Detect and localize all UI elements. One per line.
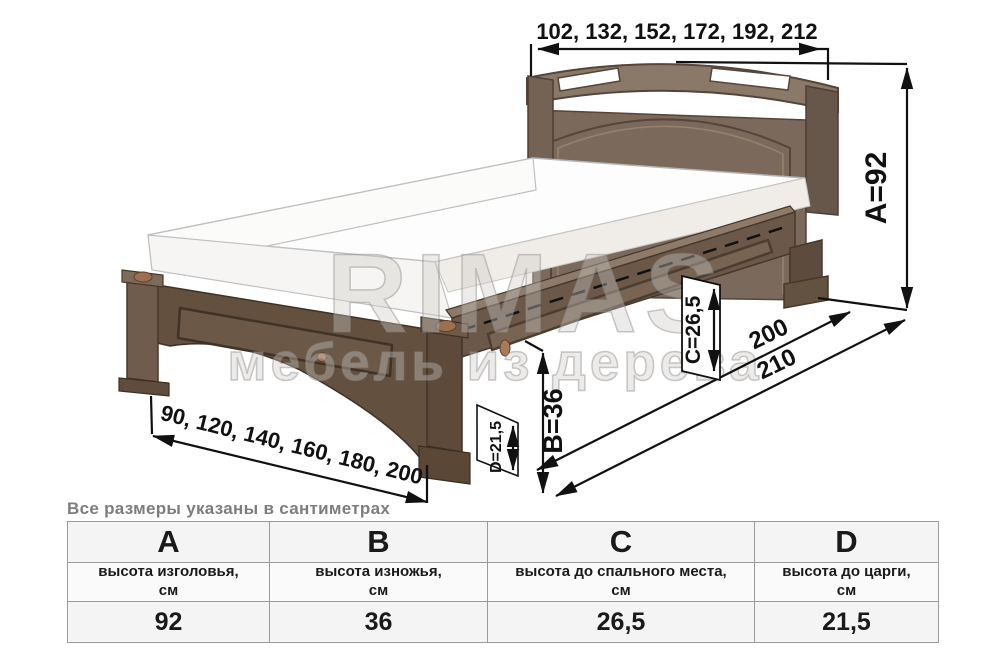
col-a-description: высота изголовья, см (68, 563, 270, 602)
units-note: Все размеры указаны в сантиметрах (67, 499, 390, 519)
dim-ext-floor-head (818, 298, 907, 310)
col-b-description: высота изножья, см (270, 563, 488, 602)
col-b-desc-text: высота изножья, (315, 563, 442, 580)
table-row-values: 92 36 26,5 21,5 (68, 602, 939, 643)
headboard-post-left (528, 76, 553, 168)
table-row-descriptions: высота изголовья, см высота изножья, см … (68, 563, 939, 602)
col-a-unit: см (159, 582, 178, 599)
dimensions-table: A B C D высота изголовья, см высота изно… (67, 521, 939, 643)
footboard-foot-left (119, 378, 169, 396)
bed-diagram: RIMAS мебель из дерева (0, 0, 1000, 520)
col-a-letter: A (68, 522, 270, 563)
label-height-a: А=92 (860, 152, 893, 225)
col-d-desc-text: высота до царги, (782, 563, 910, 580)
col-c-value: 26,5 (488, 602, 755, 643)
table-row-letters: A B C D (68, 522, 939, 563)
footboard-knob-left (134, 272, 152, 282)
footboard-post-left (127, 280, 158, 382)
dim-ext-headboard-right (820, 49, 828, 80)
label-height-c: С=26,5 (682, 296, 705, 365)
label-headboard-widths: 102, 132, 152, 172, 192, 212 (536, 19, 817, 44)
headboard-post-right (806, 86, 838, 215)
col-d-description: высота до царги, см (755, 563, 939, 602)
col-a-desc-text: высота изголовья, (98, 563, 238, 580)
col-b-value: 36 (270, 602, 488, 643)
col-d-value: 21,5 (755, 602, 939, 643)
col-b-letter: B (270, 522, 488, 563)
bed-dimension-diagram-page: RIMAS мебель из дерева (0, 0, 1000, 667)
col-d-letter: D (755, 522, 939, 563)
col-a-value: 92 (68, 602, 270, 643)
col-d-unit: см (837, 582, 856, 599)
label-height-b: В=36 (538, 388, 568, 453)
label-height-d: D=21,5 (488, 421, 505, 473)
col-c-unit: см (611, 582, 630, 599)
dim-leader-headboard-top (676, 62, 907, 64)
col-c-letter: C (488, 522, 755, 563)
col-b-unit: см (369, 582, 388, 599)
dim-ext-footboard-left (151, 396, 152, 434)
col-c-description: высота до спального места, см (488, 563, 755, 602)
col-c-desc-text: высота до спального места, (515, 563, 726, 580)
